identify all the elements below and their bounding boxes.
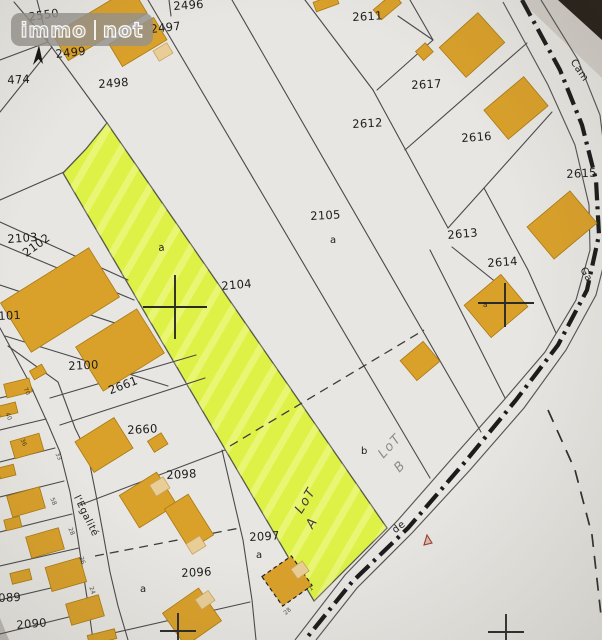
parcel-label: 2105	[310, 209, 341, 222]
parcel-label: 474	[7, 74, 30, 87]
parcel-label: 2498	[98, 77, 129, 91]
letter-label: a	[256, 551, 262, 561]
letter-label: b	[361, 447, 367, 457]
letter-label: a	[483, 302, 487, 309]
parcel-label: 101	[0, 310, 21, 323]
letter-label: a	[140, 585, 146, 595]
red-survey-mark	[424, 535, 432, 545]
parcel-label: 2499	[55, 46, 87, 61]
parcel-label: 2660	[127, 423, 158, 436]
parcel-label: 2497	[150, 21, 182, 36]
parcel-label: 2098	[166, 468, 197, 481]
cadastral-map: 2550249947424982497249626112617261226162…	[0, 0, 602, 640]
parcel-label: 2611	[352, 10, 383, 23]
watermark-text-right: not	[103, 18, 144, 42]
parcel-label: 2090	[16, 617, 47, 631]
parcel-label: 2617	[411, 78, 442, 91]
parcel-label: 2613	[447, 227, 478, 241]
parcel-label: 2612	[352, 117, 383, 130]
tiny-label: 26	[77, 556, 85, 565]
map-linework	[0, 0, 602, 640]
watermark-logo: immo not	[11, 13, 153, 46]
parcel-label: 2104	[221, 278, 252, 292]
parcel-label: 2096	[181, 566, 212, 579]
parcel-label: 2496	[173, 0, 204, 12]
parcel-label: 2100	[68, 359, 99, 372]
north-arrow-icon	[33, 45, 43, 65]
watermark-text-left: immo	[21, 18, 87, 42]
parcel-label: 2615	[566, 167, 597, 180]
parcel-label: 2097	[249, 530, 280, 543]
tiny-label: 24	[87, 586, 95, 595]
parcel-label: 2616	[461, 131, 492, 145]
watermark-divider	[94, 20, 96, 40]
parcel-label: 089	[0, 592, 21, 605]
parcel-label: 2614	[487, 256, 518, 270]
letter-label: a	[158, 243, 165, 253]
letter-label: a	[330, 236, 336, 246]
